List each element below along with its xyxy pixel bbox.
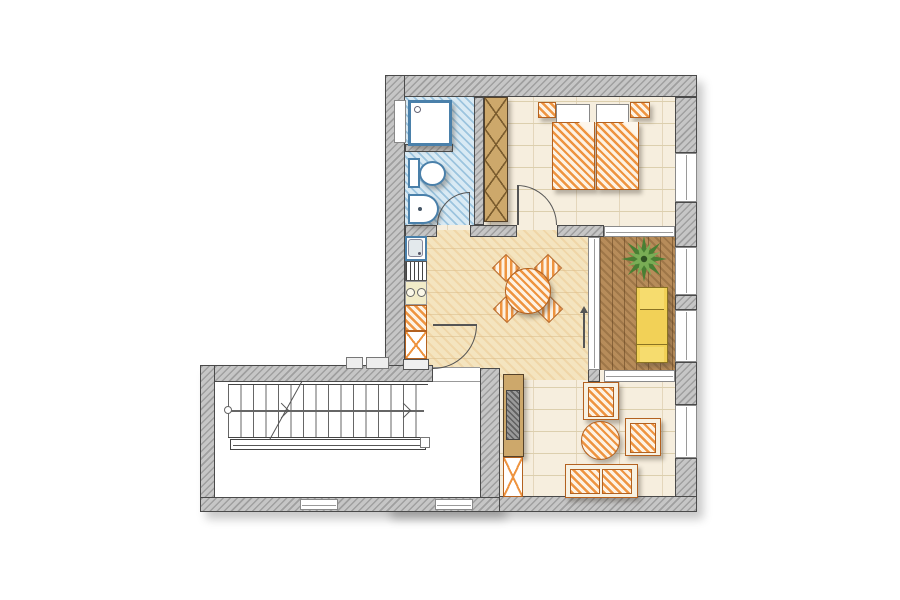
sun-lounger-divider [636, 344, 668, 345]
armchair-cushion [630, 423, 656, 453]
washbasin [408, 194, 439, 224]
wall-living-west [480, 368, 500, 512]
sun-lounger-headrest [640, 288, 664, 310]
entry-threshold [433, 367, 480, 382]
wall-niche-block [366, 357, 389, 369]
sun-lounger-footrest [640, 347, 664, 362]
balcony-glass-door [588, 237, 600, 370]
kitchen-counter [405, 305, 427, 331]
toilet-bowl [419, 161, 446, 186]
bedroom-door-leaf [517, 185, 519, 225]
wall-bath-east [474, 97, 484, 225]
walking-line-start-circle [224, 406, 232, 414]
wall-east-pier [675, 202, 697, 247]
dining-table [505, 268, 551, 314]
kitchen-base-cabinet [405, 331, 427, 359]
living-cabinet [503, 457, 523, 497]
wall-niche-block [346, 357, 363, 369]
wall-balcony-pier [588, 368, 600, 382]
armchair [625, 418, 661, 456]
wall-bed-south [557, 225, 604, 237]
sofa-cushion [570, 469, 600, 494]
bathroom-door-leaf [469, 192, 471, 225]
living-window [675, 405, 697, 458]
blanket-fold-right [623, 122, 638, 137]
balcony-glazing-south [604, 370, 675, 382]
wall-bed-south [470, 225, 517, 237]
burner [417, 288, 426, 297]
potted-plant [620, 235, 668, 283]
wall-east-pier [675, 362, 697, 405]
wall-east-pier [675, 97, 697, 153]
landing-post [420, 437, 430, 448]
bedroom-window [675, 153, 697, 202]
floor-plan-canvas [0, 0, 900, 600]
wall-stairwell-north [200, 365, 433, 382]
sofa-cushion [602, 469, 632, 494]
burner [406, 288, 415, 297]
wall-east-pier [675, 295, 697, 310]
stair-handrail [230, 439, 426, 450]
duct-shaft [394, 100, 406, 143]
door-swing-indicator-line [583, 312, 585, 348]
kitchen-sink-drain [418, 252, 421, 255]
stairwell-window [300, 499, 338, 510]
wall-south [480, 496, 697, 512]
stairwell-window [435, 499, 473, 510]
balcony-window-east [675, 247, 697, 295]
nightstand-left [538, 102, 556, 118]
nightstand-right [630, 102, 650, 118]
coffee-table [581, 421, 620, 460]
balcony-window-east [675, 310, 697, 362]
sideboard-inset [506, 390, 520, 440]
armchair [583, 382, 619, 420]
blanket-fold-left [579, 122, 594, 137]
door-swing-indicator-arrow [580, 306, 588, 313]
washbasin-drain [418, 207, 422, 211]
sofa [565, 464, 638, 498]
wardrobe [484, 97, 508, 222]
dish-drainer [405, 261, 427, 281]
armchair-cushion [588, 387, 614, 417]
wall-north [385, 75, 697, 97]
shower-drain [414, 106, 421, 113]
entry-door-leaf [433, 324, 477, 326]
wall-stairwell-west [200, 365, 215, 512]
kitchen-plinth [403, 359, 429, 370]
